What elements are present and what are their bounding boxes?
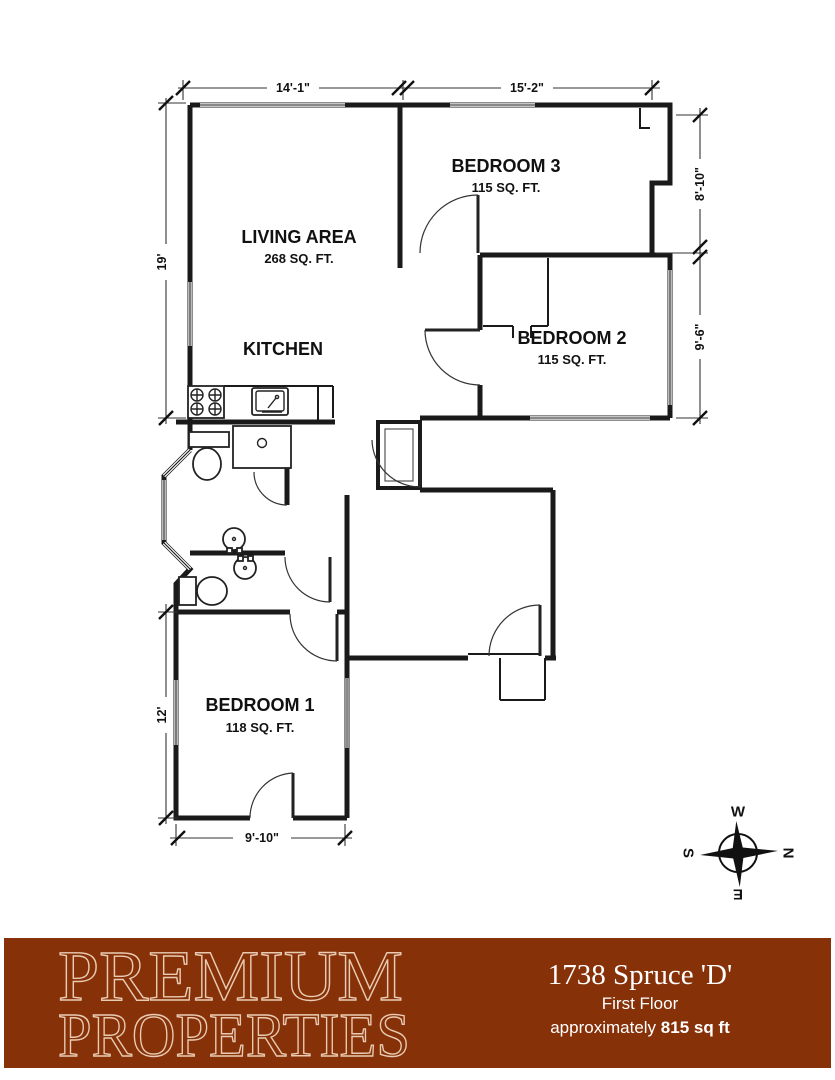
dim-right-upper: 8'-10" — [693, 167, 707, 201]
compass-east-label: E — [733, 886, 743, 903]
room-label-bedroom2: BEDROOM 2 — [517, 328, 626, 348]
room-label-bedroom1: BEDROOM 1 — [205, 695, 314, 715]
dim-right-lower: 9'-6" — [693, 323, 707, 350]
compass-rose-icon: W N S E — [680, 804, 797, 903]
floor-plan-page: 14'-1" 15'-2" 19' 8'-10" 9'-6" 12' 9'-10… — [0, 0, 835, 1080]
room-label-living: LIVING AREA — [241, 227, 356, 247]
stove-icon — [188, 386, 224, 418]
room-area-bedroom1: 118 SQ. FT. — [226, 720, 295, 735]
room-label-bedroom3: BEDROOM 3 — [451, 156, 560, 176]
listing-area-prefix: approximately — [550, 1018, 661, 1037]
vanity-sink-icon — [233, 426, 291, 468]
footer-banner: PREMIUM PROPERTIES 1738 Spruce 'D' First… — [4, 938, 831, 1068]
listing-floor: First Floor — [472, 993, 808, 1015]
listing-area: approximately 815 sq ft — [472, 1017, 808, 1039]
room-area-bedroom2: 115 SQ. FT. — [538, 352, 607, 367]
dim-bottom: 9'-10" — [245, 831, 279, 845]
listing-area-value: 815 sq ft — [661, 1018, 730, 1037]
water-heater-icon — [378, 422, 420, 488]
pedestal-sink-icon-hall — [223, 528, 245, 553]
floor-plan-drawing: 14'-1" 15'-2" 19' 8'-10" 9'-6" 12' 9'-10… — [0, 0, 835, 935]
toilet-icon-powder — [189, 432, 229, 480]
brand-logo: PREMIUM PROPERTIES — [50, 946, 430, 1064]
brand-line2: PROPERTIES — [58, 1002, 410, 1064]
dim-top-left: 14'-1" — [276, 81, 310, 95]
listing-address: 1738 Spruce 'D' — [472, 958, 808, 992]
room-area-living: 268 SQ. FT. — [264, 251, 333, 266]
room-area-bedroom3: 115 SQ. FT. — [472, 180, 541, 195]
compass-west-label: W — [731, 804, 746, 821]
listing-info: 1738 Spruce 'D' First Floor approximatel… — [472, 958, 808, 1039]
compass-north-label: N — [780, 848, 797, 859]
pedestal-sink-icon-bath — [234, 556, 256, 579]
kitchen-sink-icon — [252, 388, 288, 415]
entry-porch — [468, 654, 545, 700]
dim-left-lower: 12' — [155, 707, 169, 724]
compass-south-label: S — [680, 848, 697, 858]
dim-top-right: 15'-2" — [510, 81, 544, 95]
dim-left-upper: 19' — [155, 254, 169, 271]
room-label-kitchen: KITCHEN — [243, 339, 323, 359]
toilet-icon-bath — [179, 577, 227, 605]
